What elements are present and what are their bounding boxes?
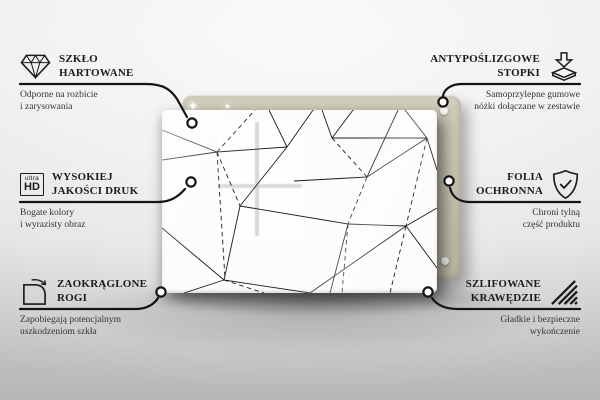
feature-title: WYSOKIEJ JAKOŚCI DRUK: [52, 171, 138, 198]
feature-description: Zapobiegają potencjalnym uszkodzeniom sz…: [20, 315, 180, 338]
feature-title-line: ZAOKRĄGLONE: [57, 278, 147, 292]
feature-callout-tempered-glass: SZKŁO HARTOWANE Odporne na rozbicie i za…: [20, 50, 170, 113]
feature-description: Gładkie i bezpieczne wykończenie: [420, 315, 580, 338]
diamond-icon: [20, 53, 51, 80]
feature-head: ultra HD WYSOKIEJ JAKOŚCI DRUK: [20, 168, 170, 201]
feature-title-line: SZLIFOWANE: [466, 278, 541, 292]
feature-title-line: HARTOWANE: [59, 67, 134, 81]
feature-head: ZAOKRĄGLONE ROGI: [20, 275, 180, 308]
feature-title-line: OCHRONNA: [476, 185, 543, 199]
feature-title-line: SZKŁO: [59, 53, 134, 67]
feature-description-line: Gładkie i bezpieczne: [420, 315, 580, 327]
feature-head: SZKŁO HARTOWANE: [20, 50, 170, 83]
feature-callout-anti-slip-feet: ANTYPOŚLIZGOWE STOPKI Samoprzylepne gumo…: [420, 50, 580, 113]
ultra-hd-icon: ultra HD: [20, 173, 44, 196]
feature-description-line: Odporne na rozbicie: [20, 90, 170, 102]
feature-title-line: KRAWĘDZIE: [466, 292, 541, 306]
feature-title: FOLIA OCHRONNA: [476, 171, 543, 198]
feature-callout-rounded-corners: ZAOKRĄGLONE ROGI Zapobiegają potencjalny…: [20, 275, 180, 338]
feature-description: Samoprzylepne gumowe nóżki dołączane w z…: [420, 90, 580, 113]
feature-description-line: wykończenie: [420, 327, 580, 339]
feature-description-line: nóżki dołączane w zestawie: [420, 102, 580, 114]
feature-description: Odporne na rozbicie i zarysowania: [20, 90, 170, 113]
feature-title-line: JAKOŚCI DRUK: [52, 185, 138, 199]
feature-title-line: WYSOKIEJ: [52, 171, 138, 185]
feature-description: Bogate kolory i wyrazisty obraz: [20, 208, 170, 231]
feature-title: SZLIFOWANE KRAWĘDZIE: [466, 278, 541, 305]
feature-title-line: ROGI: [57, 292, 147, 306]
anti-slip-feet-icon: [548, 51, 580, 82]
feature-title-line: FOLIA: [476, 171, 543, 185]
feature-description-line: Samoprzylepne gumowe: [420, 90, 580, 102]
rounded-corner-icon: [20, 278, 49, 306]
feature-head: SZLIFOWANE KRAWĘDZIE: [420, 275, 580, 308]
geometric-line-pattern: [162, 110, 437, 293]
feature-callout-protective-film: FOLIA OCHRONNA Chroni tylną część produk…: [420, 168, 580, 231]
feature-description: Chroni tylną część produktu: [420, 208, 580, 231]
feature-title-line: STOPKI: [430, 67, 540, 81]
rubber-foot: [441, 257, 449, 265]
product-feature-infographic: ✦ ✦ SZKŁO HARTOWANE: [0, 0, 600, 400]
feature-title-line: ANTYPOŚLIZGOWE: [430, 53, 540, 67]
feature-description-line: część produktu: [420, 220, 580, 232]
glass-board: [162, 110, 437, 293]
feature-description-line: i zarysowania: [20, 102, 170, 114]
feature-description-line: uszkodzeniom szkła: [20, 327, 180, 339]
feature-title: ANTYPOŚLIZGOWE STOPKI: [430, 53, 540, 80]
feature-callout-print-quality: ultra HD WYSOKIEJ JAKOŚCI DRUK Bogate ko…: [20, 168, 170, 231]
feature-description-line: Zapobiegają potencjalnym: [20, 315, 180, 327]
feature-callout-polished-edges: SZLIFOWANE KRAWĘDZIE Gładkie i bezpieczn…: [420, 275, 580, 338]
polished-edge-icon: [549, 278, 580, 305]
shield-check-icon: [551, 169, 580, 200]
feature-title: SZKŁO HARTOWANE: [59, 53, 134, 80]
sparkle-icon: ✦: [188, 99, 198, 114]
feature-description-line: i wyrazisty obraz: [20, 220, 170, 232]
feature-head: FOLIA OCHRONNA: [420, 168, 580, 201]
sparkle-icon: ✦: [224, 102, 231, 111]
feature-description-line: Bogate kolory: [20, 208, 170, 220]
feature-head: ANTYPOŚLIZGOWE STOPKI: [420, 50, 580, 83]
feature-title: ZAOKRĄGLONE ROGI: [57, 278, 147, 305]
ultra-hd-icon-big-text: HD: [24, 182, 40, 193]
feature-description-line: Chroni tylną: [420, 208, 580, 220]
